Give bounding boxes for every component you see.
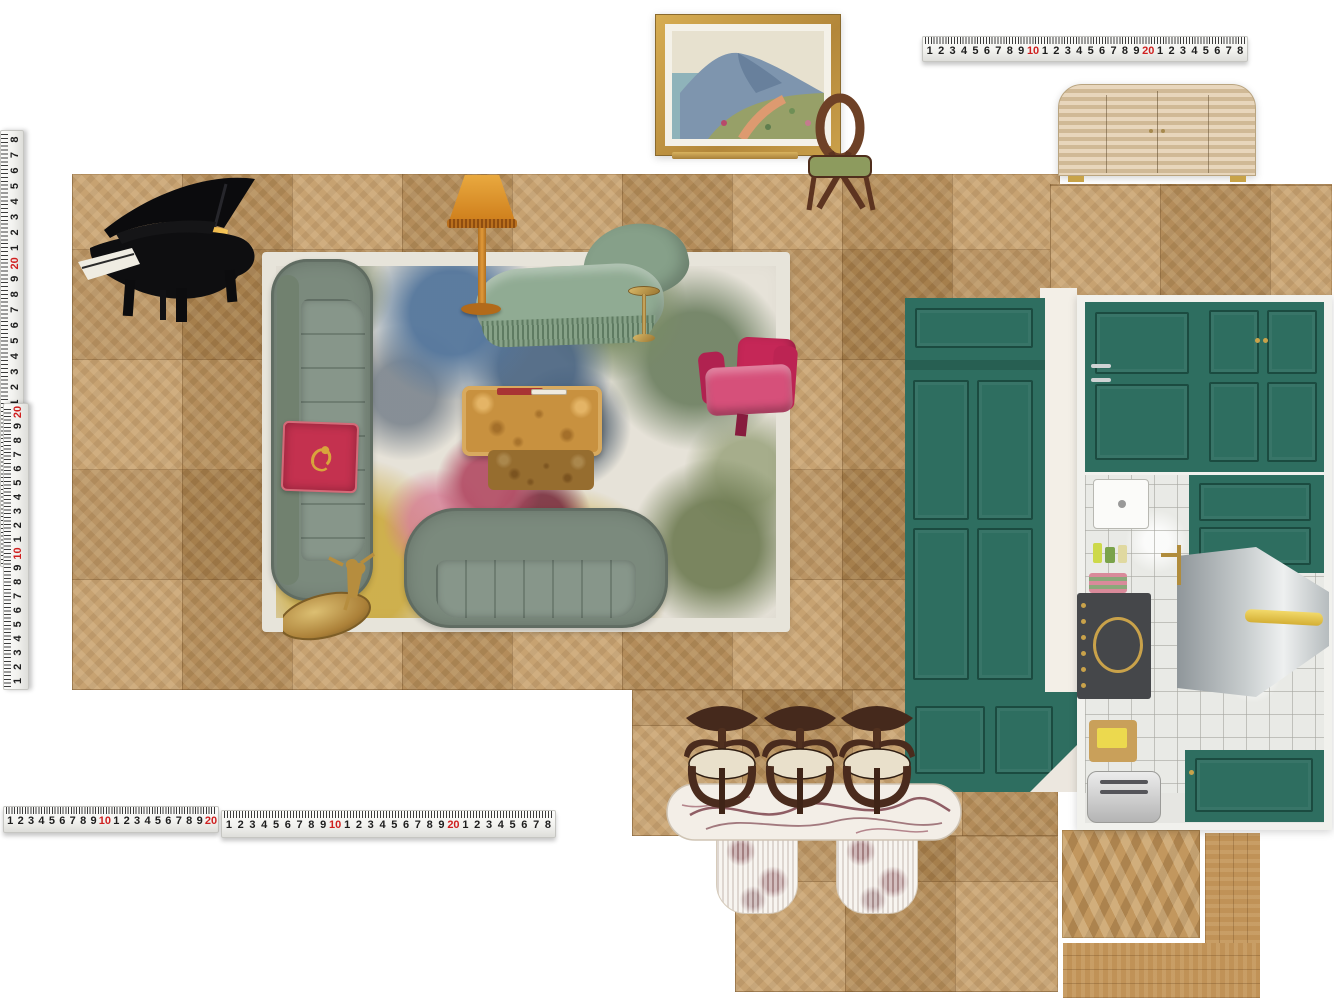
magenta-armchair[interactable] [696, 334, 800, 438]
brass-faucet [1177, 545, 1181, 585]
shelf-bottle [1093, 543, 1102, 563]
book-stack [531, 389, 567, 395]
chair-seat [809, 156, 871, 177]
credenza-knob [1149, 129, 1153, 133]
dining-chair[interactable] [756, 702, 844, 820]
velvet-sofa-horizontal[interactable] [404, 508, 668, 628]
sofa-seat [436, 560, 636, 618]
drinks-table-stem [642, 294, 646, 336]
tiger-throw-cushion[interactable] [281, 421, 359, 494]
armchair-seat [705, 364, 793, 416]
side-table-figure [346, 559, 366, 598]
stove-brass-rail [1093, 617, 1143, 673]
lamp-stem [478, 228, 486, 306]
cabinet-handle [1091, 378, 1111, 382]
armchair-leg [735, 413, 748, 436]
cabinet-knob [1189, 770, 1194, 775]
lamp-base [461, 303, 501, 315]
piano-leg [123, 280, 135, 317]
floor-top-right-strip[interactable] [1050, 184, 1332, 296]
grand-piano[interactable] [76, 164, 258, 324]
teal-kitchen-photo[interactable] [1077, 295, 1332, 830]
cabinet-bench-section [905, 692, 1077, 792]
ruler-left-lower[interactable]: 1234567891012345678920 [3, 403, 29, 690]
drinks-table-base [633, 334, 655, 342]
brass-figural-side-table[interactable] [283, 550, 383, 645]
piano-leg [176, 288, 187, 322]
piano-pedal-lyre [160, 290, 166, 320]
credenza-door-seam [1106, 95, 1107, 173]
ruler-numbers: 1234567891012345678920 [4, 814, 218, 832]
dining-chair[interactable] [678, 702, 766, 820]
wooden-loop-chair[interactable] [797, 92, 883, 212]
striped-tin [1089, 573, 1127, 593]
leaning-frame-edge[interactable] [672, 152, 798, 159]
range-stove [1077, 593, 1151, 699]
brass-faucet-spout [1161, 553, 1179, 557]
ruler-ticks [224, 811, 553, 818]
toaster [1087, 771, 1161, 823]
ruler-bottom-left-second[interactable]: 123456789101234567892012345678 [221, 810, 556, 838]
ribbed-credenza[interactable] [1058, 84, 1256, 176]
ruler-ticks [4, 406, 11, 687]
chair-loop-back [820, 98, 860, 158]
kitchen-upper-cabinets [1085, 302, 1324, 472]
chevron-floor-swatch[interactable] [1062, 830, 1200, 938]
ruler-ticks [925, 37, 1245, 44]
plank-floor-swatch-horizontal[interactable] [1063, 943, 1260, 998]
side-table-tray [283, 584, 375, 645]
kitchen-cabinet-below-hood [1185, 750, 1324, 822]
cabinet-photo-white-edge [1040, 288, 1077, 758]
chair-crest [686, 706, 758, 731]
tiger-motif [300, 437, 341, 478]
ruler-top-right[interactable]: 123456789101234567892012345678 [922, 36, 1248, 62]
cabinet-knob [1263, 338, 1268, 343]
cabinet-knob [1255, 338, 1260, 343]
credenza-knob [1161, 129, 1165, 133]
dining-chair[interactable] [833, 702, 921, 820]
cabinet-tall-section [905, 370, 1045, 692]
credenza-foot [1068, 176, 1084, 182]
lamp-shade [449, 175, 515, 221]
ruler-bottom-left-first[interactable]: 1234567891012345678920 [3, 806, 219, 833]
kitchen-scale-device [1089, 720, 1137, 762]
burl-coffee-table[interactable] [462, 386, 602, 456]
mustard-floor-lamp[interactable] [447, 175, 519, 317]
shelf-bottle [1105, 547, 1115, 563]
cabinet-handle [1091, 364, 1111, 368]
shelf-bottle [1118, 545, 1127, 563]
hood-light [1245, 609, 1324, 626]
credenza-door-seam [1157, 91, 1158, 173]
ruler-numbers: 1234567891012345678920 [11, 404, 28, 689]
teal-cabinet-photo[interactable] [905, 288, 1077, 792]
credenza-foot [1230, 176, 1246, 182]
wall-heater-box [1093, 479, 1149, 529]
ruler-numbers: 123456789101234567892012345678 [923, 44, 1247, 61]
coffee-table-lower-tier [488, 450, 594, 490]
design-canvas: 123456789101234567892012345678 123456789… [0, 0, 1334, 1000]
credenza-door-seam [1208, 95, 1209, 173]
lamp-fringe [447, 219, 517, 228]
brass-drinks-table[interactable] [626, 286, 662, 346]
ruler-numbers: 123456789101234567892012345678 [222, 818, 555, 837]
cabinet-cornice [905, 360, 1045, 370]
ruler-ticks [6, 807, 216, 814]
chair-center-leg [719, 768, 725, 814]
cabinet-top-section [905, 298, 1045, 360]
